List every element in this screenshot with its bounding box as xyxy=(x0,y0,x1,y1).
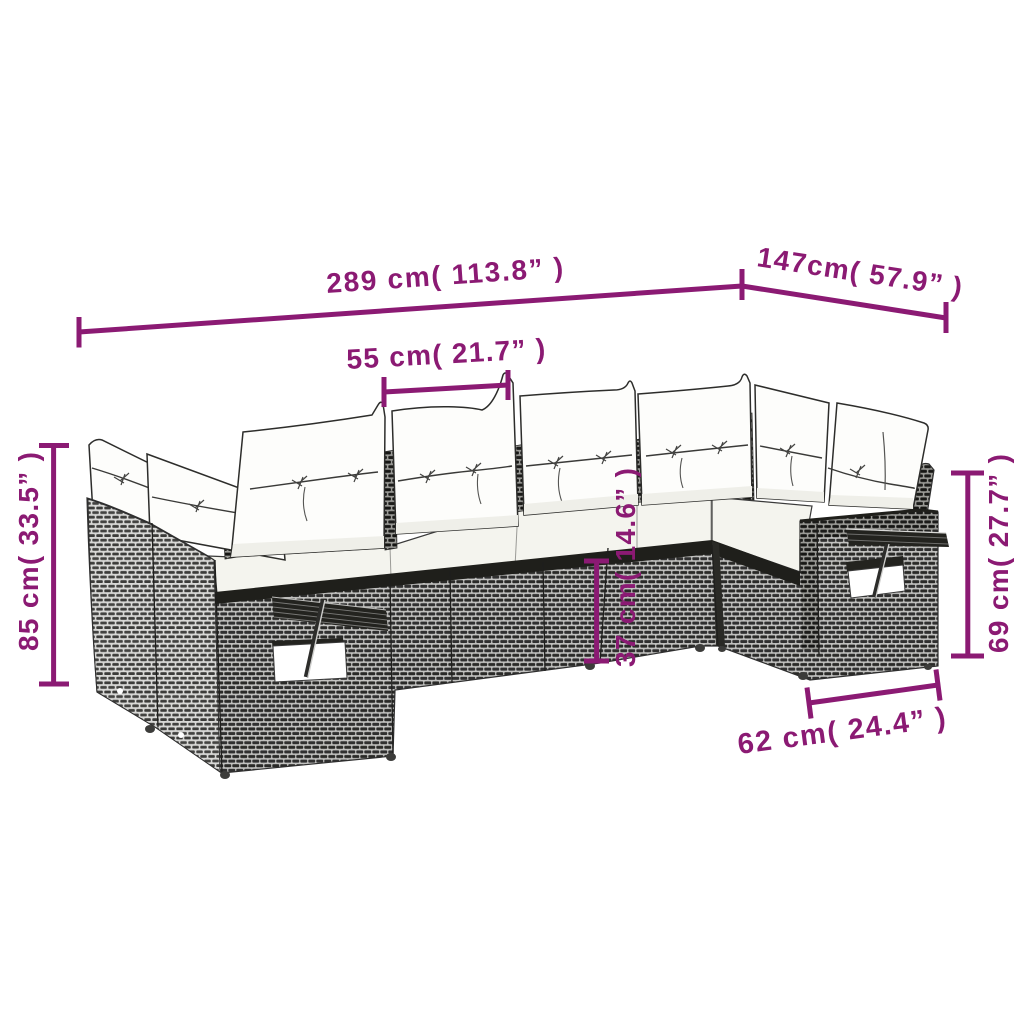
svg-text:85 cm( 33.5” ): 85 cm( 33.5” ) xyxy=(13,451,44,651)
svg-text:37 cm( 14.6” ): 37 cm( 14.6” ) xyxy=(610,467,641,667)
svg-text:69 cm( 27.7” ): 69 cm( 27.7” ) xyxy=(983,453,1014,653)
